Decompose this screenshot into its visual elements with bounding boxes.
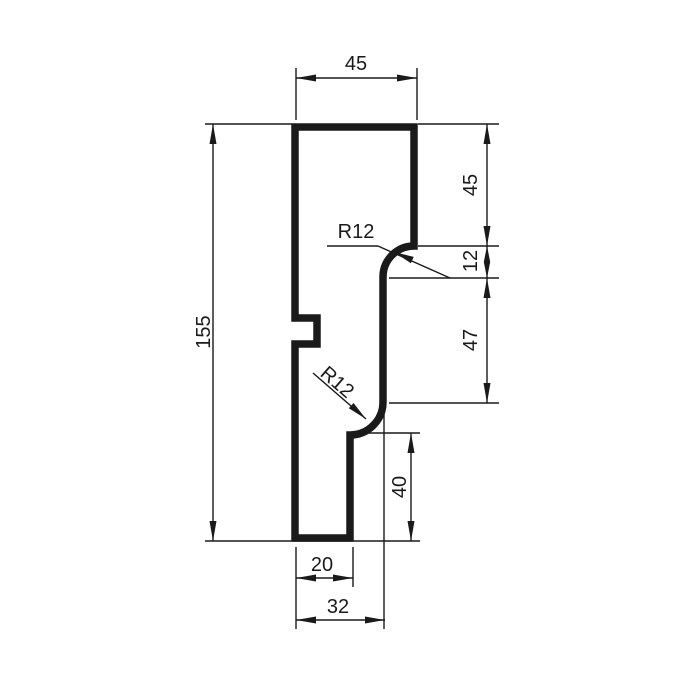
- leader-arrowhead: [394, 252, 414, 263]
- arrowhead-bottom: [210, 521, 217, 541]
- arrowhead-top: [408, 433, 415, 453]
- dim-label-right-lower: 40: [389, 476, 411, 498]
- profile-drawing-svg: 45 155 45 12 47 40: [0, 0, 686, 686]
- arrowhead-right: [397, 75, 417, 82]
- arrowhead: [484, 383, 491, 403]
- dim-bottom-outer: 32: [296, 406, 385, 629]
- arrowhead: [484, 278, 491, 298]
- arrowhead-right: [365, 617, 385, 624]
- arrowhead: [484, 246, 490, 262]
- arrowhead-bottom: [408, 521, 415, 541]
- arrowhead: [484, 124, 491, 144]
- dim-top-width: 45: [296, 53, 417, 120]
- radius-label-upper: R12: [338, 221, 375, 243]
- radius-label-lower: R12: [316, 362, 358, 403]
- dim-label-right-middle: 47: [460, 329, 482, 351]
- dim-right-lower: 40: [356, 433, 420, 541]
- arrowhead-left: [296, 617, 316, 624]
- leader-arrowhead: [349, 403, 366, 419]
- radius-callout-upper: R12: [327, 221, 450, 278]
- dim-label-right-step: 12: [460, 250, 482, 272]
- dim-right-stack: 45 12 47: [389, 124, 499, 403]
- dim-label-bottom-inner: 20: [311, 554, 333, 576]
- dim-label-height-total: 155: [193, 315, 215, 348]
- dim-label-bottom-outer: 32: [327, 596, 349, 618]
- technical-drawing: 45 155 45 12 47 40: [0, 0, 686, 686]
- arrowhead-top: [210, 124, 217, 144]
- arrowhead-left: [296, 75, 316, 82]
- arrowhead-right: [333, 575, 353, 582]
- dim-label-right-upper: 45: [460, 174, 482, 196]
- radius-callout-lower: R12: [313, 362, 366, 419]
- arrowhead: [484, 262, 490, 278]
- dim-label-top-width: 45: [345, 53, 367, 75]
- arrowhead: [484, 226, 491, 246]
